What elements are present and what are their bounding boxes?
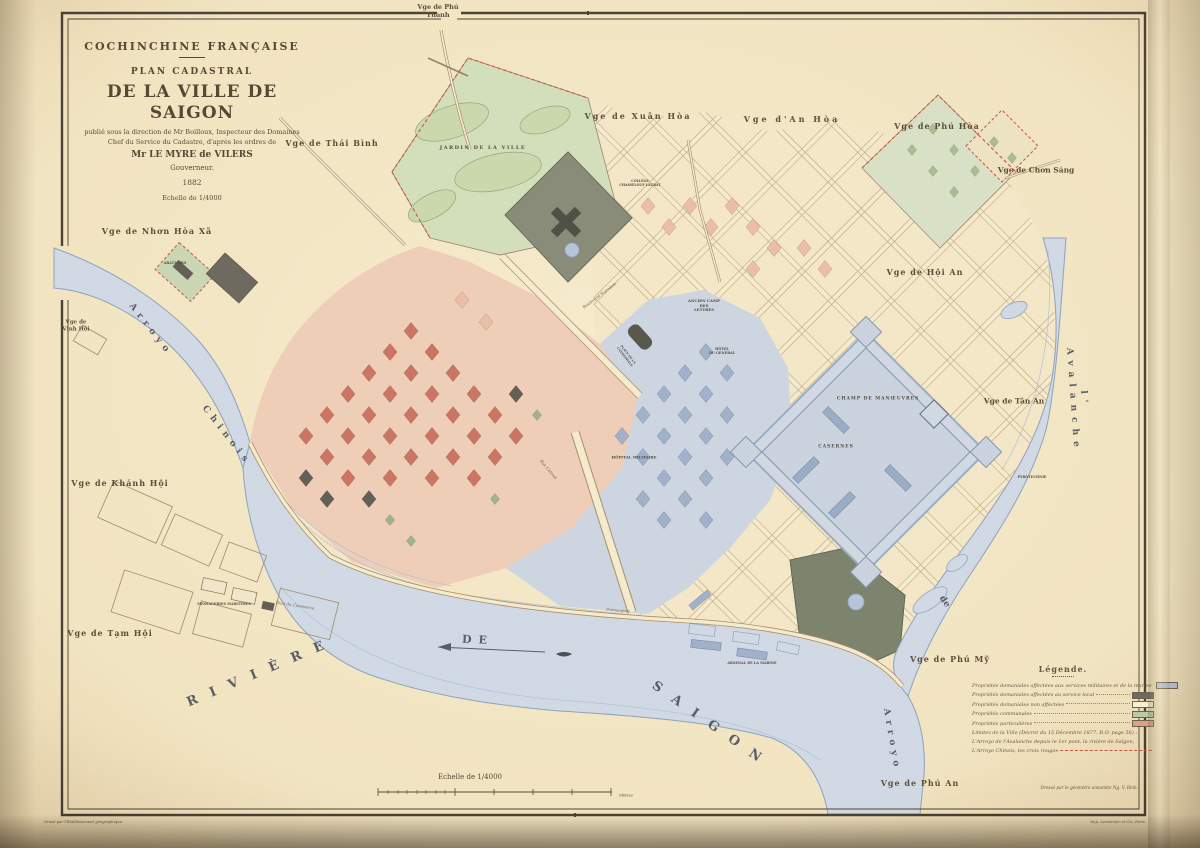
map-label-camp-lettres: ANCIEN CAMP DES LETTRÉS: [688, 299, 720, 313]
legend-item-2: Propriétés domaniales non affectées: [972, 700, 1154, 710]
title-block: COCHINCHINE FRANÇAISE PLAN CADASTRAL DE …: [82, 40, 302, 202]
legend-item-label: Propriétés communales: [972, 711, 1032, 717]
legend-note-text: L'Arroyo de l'Avalanche depuis le 1er po…: [972, 739, 1134, 745]
legend-item-label: Propriétés domaniales non affectées: [972, 702, 1064, 708]
map-label-casernes: CASERNES: [818, 444, 854, 449]
botanic-pond: [848, 594, 864, 610]
map-type: PLAN CADASTRAL: [82, 67, 302, 78]
map-title: DE LA VILLE DE SAIGON: [82, 82, 302, 125]
legend-item-label: Propriétés domaniales affectées au servi…: [972, 692, 1094, 698]
legend-item-label: Propriétés particulières: [972, 721, 1032, 727]
map-label-hopital: HÔPITAL MILITAIRE: [612, 456, 657, 461]
scale-note: Echelle de 1/4000: [82, 194, 302, 202]
map-label-xuan-hoa: Vge de Xuân Hòa: [584, 112, 691, 122]
legend-leader: [1034, 722, 1130, 723]
credit-drafted: Dressé par le géomètre annamite Ng. V. B…: [960, 785, 1138, 790]
legend-item-0: Propriétés domaniales affectées aux serv…: [972, 681, 1154, 691]
legend-notes: Limites de la Ville (Décret du 15 Décemb…: [972, 729, 1154, 756]
legend-item-1: Propriétés domaniales affectées au servi…: [972, 691, 1154, 701]
credit-engraved: Gravé par l'Établissement géographique.: [44, 819, 123, 824]
legend-leader: [1066, 703, 1130, 704]
map-label-phu-hoa: Vge de Phú Hòa: [894, 122, 980, 132]
legend-rows: Propriétés domaniales affectées aux serv…: [972, 681, 1154, 729]
map-label-de: DE: [462, 633, 495, 648]
map-label-chon-sang: Vge de Chơn Sáng: [998, 166, 1075, 175]
map-label-vinh-hoi: Vge de Vinh Hội: [62, 319, 89, 332]
map-label-echelle-bottom: Echelle de 1/4000: [438, 773, 502, 781]
map-label-abattoirs: ABATTOIRS: [164, 261, 187, 265]
map-label-thai-binh: Vge de Thái Bình: [285, 139, 378, 149]
map-label-jardin: JARDIN DE LA VILLE: [440, 145, 526, 151]
map-label-messageries: MESSAGERIES MARITIMES: [197, 602, 251, 606]
legend-title-rule: [1052, 676, 1074, 677]
map-label-phu-an: Vge de Phú An: [881, 779, 960, 789]
map-label-nhon-hoa-xa: Vge de Nhơn Hòa Xã: [102, 227, 212, 237]
map-sheet-photo: COCHINCHINE FRANÇAISE PLAN CADASTRAL DE …: [0, 0, 1200, 848]
legend-title: Légende.: [972, 664, 1154, 674]
governor-name: Mr LE MYRE de VILERS: [82, 150, 302, 161]
legend-item-3: Propriétés communales: [972, 710, 1154, 720]
divider: [179, 57, 205, 58]
credit-printed: Imp. Lemercier et Cie, Paris.: [1060, 819, 1146, 824]
publication-line: publié sous la direction de Mr Boilloux,…: [82, 128, 302, 136]
legend-swatch: [1132, 720, 1154, 727]
service-line: Chef du Service du Cadastre, d'après les…: [82, 138, 302, 146]
map-label-pyrotechnie: PYROTECHNIE: [1017, 475, 1046, 479]
garden-pond: [565, 243, 579, 257]
legend-note-2: L'Arroyo Chinois, les croix rouges: [972, 747, 1154, 756]
red-dash-sample: [1060, 750, 1152, 751]
legend-swatch: [1132, 692, 1154, 699]
legend-leader: [1096, 694, 1130, 695]
map-label-college: COLLÈGE CHASSELOUP LAUBAT: [619, 180, 660, 188]
map-label-hotel-general: HÔTEL DU GÉNÉRAL: [709, 347, 735, 355]
legend: Légende. Propriétés domaniales affectées…: [972, 664, 1154, 756]
map-label-metres: Mètres: [619, 794, 633, 799]
legend-item-4: Propriétés particulières: [972, 719, 1154, 729]
map-label-an-hoa: Vge d'An Hòa: [744, 115, 841, 125]
map-label-tam-hoi: Vge de Tạm Hội: [67, 629, 152, 639]
map-label-khanh-hoi: Vge de Khánh Hội: [71, 479, 168, 489]
map-label-champ-manoeuvres: CHAMP DE MANŒUVRES: [837, 396, 919, 401]
legend-note-0: Limites de la Ville (Décret du 15 Décemb…: [972, 729, 1154, 738]
map-label-phu-thanh: Vge de Phú Thanh: [417, 4, 458, 20]
map-year: 1882: [82, 178, 302, 187]
legend-leader: [1034, 713, 1130, 714]
map-label-arsenal: ARSENAL DE LA MARINE: [727, 661, 776, 665]
legend-note-1: L'Arroyo de l'Avalanche depuis le 1er po…: [972, 738, 1154, 747]
legend-note-text: Limites de la Ville (Décret du 15 Décemb…: [972, 730, 1137, 736]
map-label-tan-an: Vge de Tân An: [984, 397, 1045, 406]
legend-item-label: Propriétés domaniales affectées aux serv…: [972, 683, 1152, 689]
legend-swatch: [1132, 711, 1154, 718]
legend-swatch: [1156, 682, 1178, 689]
governor-title: Gouverneur.: [82, 164, 302, 173]
region-title: COCHINCHINE FRANÇAISE: [82, 40, 302, 54]
legend-swatch: [1132, 701, 1154, 708]
map-label-hoi-an: Vge de Hội An: [887, 268, 964, 278]
legend-note-text: L'Arroyo Chinois, les croix rouges: [972, 748, 1058, 754]
